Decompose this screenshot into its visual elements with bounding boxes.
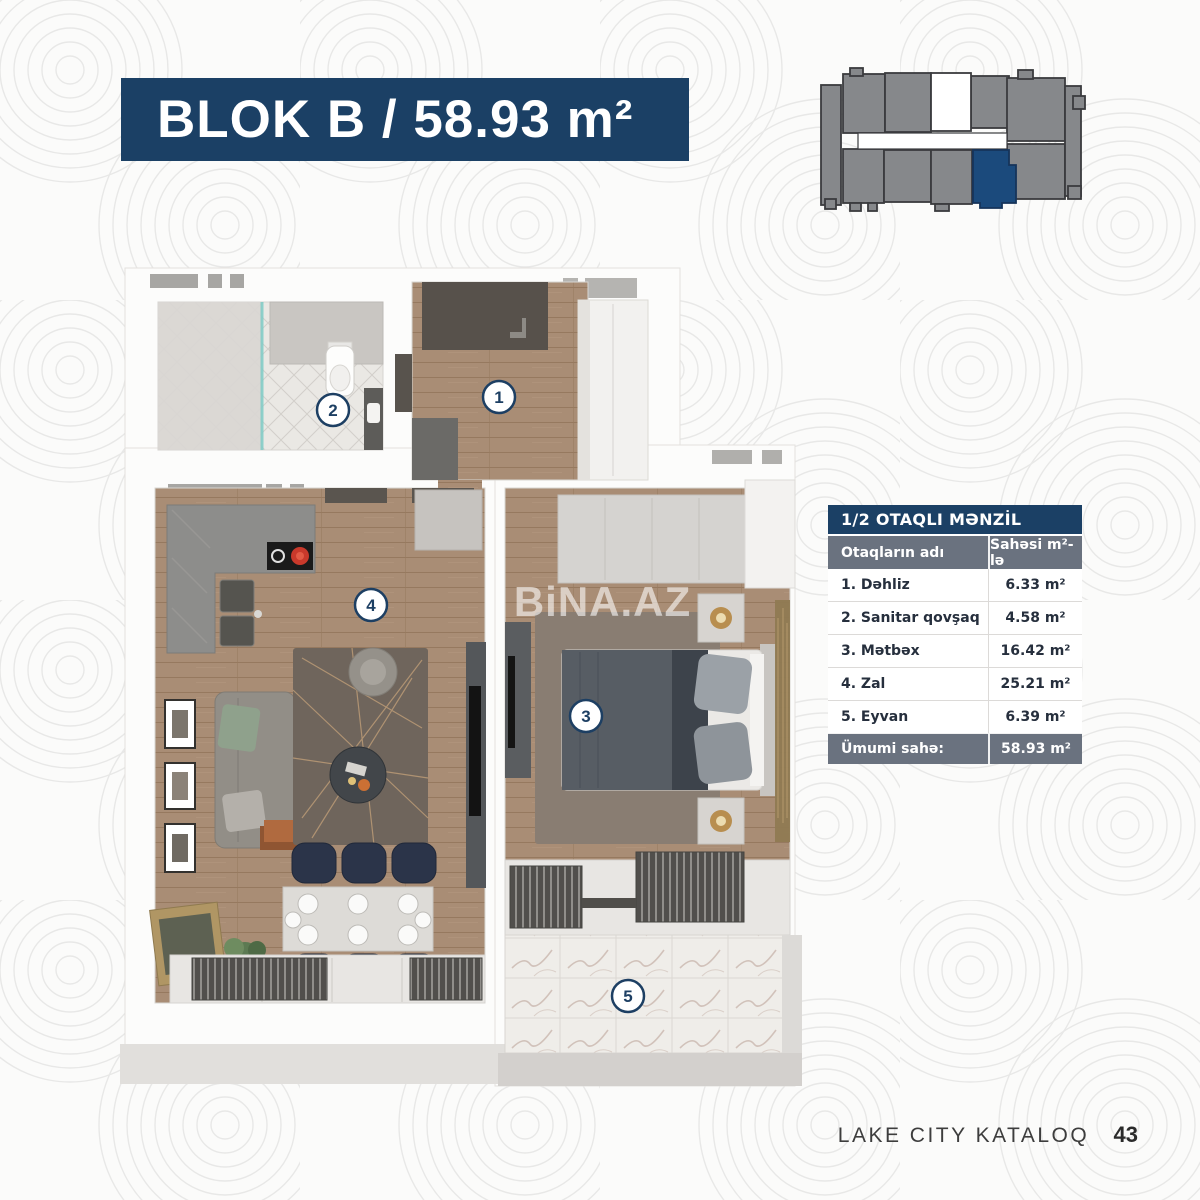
apartment-floor-plan: 1 2 3 4 5	[112, 258, 802, 1098]
radiator	[510, 866, 582, 928]
building-floorplate-diagram	[818, 56, 1093, 216]
area-table: 1/2 OTAQLI MƏNZİL Otaqların adı Sahəsi m…	[828, 505, 1082, 764]
title-banner: BLOK B / 58.93 m²	[121, 78, 689, 161]
room-area-cell: 6.33 m²	[988, 569, 1082, 601]
dining-chair	[392, 843, 436, 883]
svg-text:5: 5	[623, 987, 632, 1006]
watermark: BiNA.AZ	[505, 578, 700, 626]
sink	[220, 616, 254, 646]
room-badge-4: 4	[355, 589, 387, 621]
room-name-cell: 2. Sanitar qovşaq	[828, 602, 988, 634]
radiator	[636, 852, 744, 922]
bathroom	[158, 302, 383, 450]
bedroom	[505, 480, 795, 935]
column-header-area: Sahəsi m²-lə	[988, 536, 1082, 569]
entry-hall	[395, 282, 648, 480]
toilet	[326, 342, 354, 396]
pillow	[693, 721, 754, 785]
green-pillow	[217, 704, 261, 753]
armchair	[349, 648, 397, 696]
dining-chair	[342, 843, 386, 883]
hall-closet	[578, 300, 648, 480]
page-footer: LAKE CITY KATALOQ 43	[838, 1122, 1138, 1148]
wardrobe	[558, 480, 795, 588]
coffee-table	[330, 747, 386, 803]
table-title: 1/2 OTAQLI MƏNZİL	[828, 505, 1082, 534]
highlighted-unit-shape	[973, 150, 1016, 208]
sink	[220, 580, 254, 612]
room-badge-5: 5	[612, 980, 644, 1012]
elevator-core-shape	[931, 73, 971, 131]
table-row: 1. Dəhliz 6.33 m²	[828, 569, 1082, 601]
living-room	[150, 480, 486, 1003]
gray-pillow	[222, 789, 267, 832]
svg-text:2: 2	[328, 401, 337, 420]
table-row: 5. Eyvan 6.39 m²	[828, 700, 1082, 733]
table-row: 3. Mətbəx 16.42 m²	[828, 634, 1082, 667]
room-badge-3: 3	[570, 700, 602, 732]
room-name-cell: 5. Eyvan	[828, 701, 988, 733]
slab-edge	[120, 1044, 505, 1084]
parapet	[498, 1053, 802, 1086]
bathroom-door-leaf	[395, 354, 412, 412]
balcony	[498, 935, 802, 1086]
room-area-cell: 4.58 m²	[988, 602, 1082, 634]
hall-cabinet	[412, 418, 458, 480]
living-window-zone	[170, 955, 485, 1003]
entry-door-mat	[422, 282, 548, 350]
table-total-row: Ümumi sahə: 58.93 m²	[828, 733, 1082, 764]
room-badge-1: 1	[483, 381, 515, 413]
svg-text:3: 3	[581, 707, 590, 726]
room-area-cell: 25.21 m²	[988, 668, 1082, 700]
catalog-label: LAKE CITY KATALOQ	[838, 1124, 1089, 1147]
sofa	[215, 692, 302, 850]
total-value: 58.93 m²	[988, 734, 1082, 764]
catalog-page: BLOK B / 58.93 m²	[0, 0, 1200, 1200]
table-row: 4. Zal 25.21 m²	[828, 667, 1082, 700]
room-name-cell: 3. Mətbəx	[828, 635, 988, 667]
room-area-cell: 6.39 m²	[988, 701, 1082, 733]
room-area-cell: 16.42 m²	[988, 635, 1082, 667]
radiator	[410, 958, 482, 1000]
table-header-row: Otaqların adı Sahəsi m²-lə	[828, 534, 1082, 569]
column-header-room: Otaqların adı	[828, 536, 988, 569]
page-title: BLOK B / 58.93 m²	[157, 89, 633, 150]
door-leaf	[325, 488, 387, 503]
corridor-shape	[858, 133, 1007, 149]
dining-chair	[292, 843, 336, 883]
room-name-cell: 4. Zal	[828, 668, 988, 700]
bedroom-window-zone	[505, 852, 790, 935]
table-row: 2. Sanitar qovşaq 4.58 m²	[828, 601, 1082, 634]
total-label: Ümumi sahə:	[828, 734, 988, 764]
pillow	[693, 653, 753, 715]
room-badge-2: 2	[317, 394, 349, 426]
radiator	[192, 958, 327, 1000]
page-number: 43	[1114, 1122, 1138, 1147]
unit-shape	[821, 85, 841, 205]
tv	[469, 686, 481, 816]
svg-text:4: 4	[366, 596, 376, 615]
kitchen-upper-cabinet	[415, 490, 482, 550]
shower-area	[158, 302, 262, 450]
room-name-cell: 1. Dəhliz	[828, 569, 988, 601]
area-table-body: 1. Dəhliz 6.33 m² 2. Sanitar qovşaq 4.58…	[828, 569, 1082, 733]
bedroom-tv	[508, 656, 515, 748]
svg-text:1: 1	[494, 388, 503, 407]
